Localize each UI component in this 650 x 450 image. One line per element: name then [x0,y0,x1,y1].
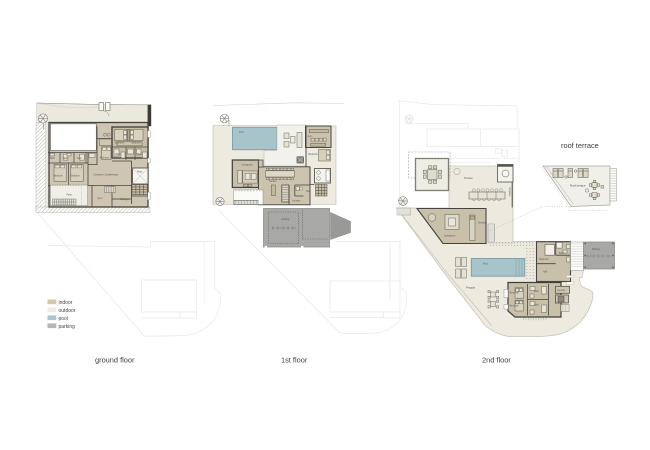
svg-text:outdoor: outdoor [59,308,76,314]
svg-text:Bedroom: Bedroom [70,174,79,177]
svg-text:Bath: Bath [559,252,564,255]
svg-text:roof terrace: roof terrace [561,141,599,150]
svg-text:Kitchen: Kitchen [478,222,486,225]
svg-text:Bath: Bath [137,153,142,156]
svg-text:Bedroom: Bedroom [115,141,124,144]
svg-text:Laundry: Laundry [292,200,301,203]
svg-text:Gym: Gym [308,136,313,138]
svg-text:Bedroom: Bedroom [54,174,63,177]
svg-text:Terrace: Terrace [464,176,473,180]
svg-text:Pool: Pool [483,264,488,266]
svg-text:Parking: Parking [282,218,291,221]
svg-text:Hall: Hall [543,272,547,274]
svg-text:Bedroom: Bedroom [510,305,519,308]
svg-text:ground floor: ground floor [95,356,135,365]
svg-text:Bedroom: Bedroom [132,141,141,144]
svg-text:Cinema / Conference: Cinema / Conference [94,172,119,176]
svg-text:Livingroom: Livingroom [444,235,455,238]
svg-text:Kitchen: Kitchen [269,180,277,183]
svg-text:1st floor: 1st floor [281,356,308,365]
svg-text:Bath: Bath [534,304,539,307]
svg-text:Bedroom: Bedroom [540,258,549,261]
svg-text:Roof terrace: Roof terrace [570,184,586,188]
svg-text:Bath: Bath [50,157,55,160]
svg-text:Laundry: Laundry [557,289,566,292]
svg-text:Bath: Bath [534,290,539,293]
svg-text:Bedroom: Bedroom [100,157,109,160]
svg-text:pool: pool [59,316,68,322]
svg-text:Cab: Cab [77,158,82,160]
svg-text:Parking: Parking [592,248,601,251]
svg-text:Hall: Hall [306,191,310,193]
svg-text:Patio: Patio [67,193,73,196]
svg-text:parking: parking [59,324,76,330]
svg-text:2nd floor: 2nd floor [482,356,511,365]
svg-text:Patio: Patio [137,171,143,174]
svg-text:Bath: Bath [63,157,68,160]
svg-text:Pergola: Pergola [466,286,475,290]
svg-text:Gym: Gym [98,198,103,200]
svg-text:indoor: indoor [59,300,73,306]
svg-text:Fireplace: Fireplace [508,187,511,197]
svg-text:Bedroom: Bedroom [510,292,519,295]
svg-text:Bodega: Bodega [121,199,130,201]
svg-text:Livingroom: Livingroom [242,164,253,167]
svg-text:Bath: Bath [116,153,121,156]
svg-text:Pool: Pool [239,132,244,134]
svg-text:Bedroom: Bedroom [309,153,318,156]
